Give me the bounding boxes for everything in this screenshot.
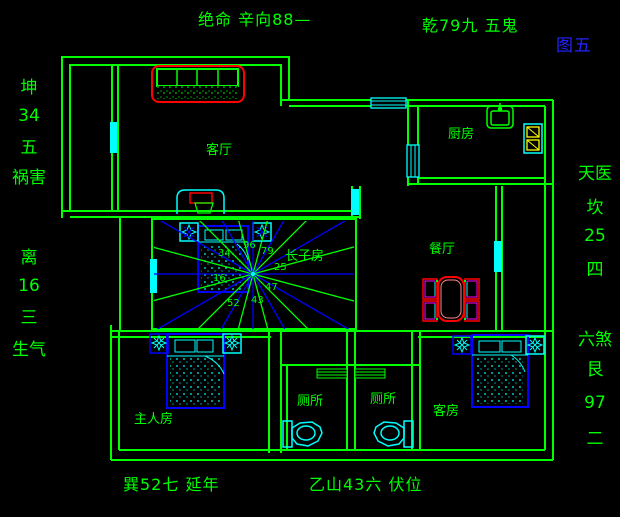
room-label-toilet-left: 厕所 (297, 395, 323, 408)
kitchen-sink (487, 103, 513, 128)
room-label-toilet-right: 厕所 (370, 393, 396, 406)
sector-number: 52 (227, 299, 240, 309)
annotation-right: 坎 (572, 200, 618, 217)
room-label-eldest-son: 长子房 (285, 250, 324, 263)
room-label-dining: 餐厅 (429, 243, 455, 256)
figure-label: 图五 (556, 38, 592, 55)
bed-master-room (167, 334, 224, 408)
window (150, 259, 157, 293)
sector-number: 25 (274, 263, 287, 273)
window (407, 145, 419, 177)
sector-number: 96 (243, 241, 256, 251)
annotation-left: 祸害 (6, 170, 52, 187)
door-sill (355, 369, 385, 378)
window (351, 189, 359, 215)
toilet-fixture (374, 421, 413, 447)
sector-number: 34 (218, 249, 231, 259)
sector-number: 43 (251, 296, 264, 306)
annotation-left: 16 (6, 278, 52, 295)
ceiling-lamp-icon (180, 223, 198, 241)
annotation-bottom-left: 巽52七 延年 (123, 477, 219, 493)
sector-number: 79 (261, 247, 274, 257)
room-label-kitchen: 厨房 (448, 128, 474, 141)
window (494, 241, 502, 272)
kitchen-stove (524, 124, 542, 153)
door-sill (317, 369, 347, 378)
dining-table-set (423, 277, 479, 321)
annotation-left: 坤 (6, 80, 52, 97)
annotation-left: 离 (6, 250, 52, 267)
sector-number: 16 (213, 274, 226, 284)
window (110, 122, 117, 153)
annotation-right: 四 (572, 262, 618, 279)
room-label-living: 客厅 (206, 144, 232, 157)
dining-chair (423, 279, 438, 299)
sector-number: 47 (265, 283, 278, 293)
annotation-right: 97 (572, 395, 618, 412)
annotation-right: 天医 (572, 166, 618, 183)
annotation-right: 二 (572, 431, 618, 448)
annotation-top-right: 乾79九 五鬼 (422, 18, 518, 34)
annotation-left: 34 (6, 108, 52, 125)
annotation-top-center: 绝命 辛向88— (198, 12, 311, 28)
annotation-bottom-center: 乙山43六 伏位 (309, 477, 422, 493)
annotation-right: 艮 (572, 362, 618, 379)
fengshui-center (251, 272, 255, 276)
toilet-fixture (283, 421, 322, 447)
ceiling-lamp-icon (453, 336, 471, 354)
dining-chair (464, 301, 479, 321)
room-label-master: 主人房 (134, 413, 173, 426)
annotation-right: 25 (572, 228, 618, 245)
dining-chair (423, 301, 438, 321)
annotation-left: 五 (6, 140, 52, 157)
annotation-left: 三 (6, 310, 52, 327)
room-label-guest: 客房 (433, 405, 459, 418)
annotation-right: 六煞 (572, 332, 618, 349)
cad-floorplan-view: 绝命 辛向88— 乾79九 五鬼 图五 坤 34 五 祸害 离 16 三 生气 … (0, 0, 620, 517)
sofa (152, 66, 244, 102)
dining-chair (464, 279, 479, 299)
annotation-left: 生气 (6, 342, 52, 359)
window (371, 98, 406, 108)
bed-guest-room (472, 335, 528, 407)
